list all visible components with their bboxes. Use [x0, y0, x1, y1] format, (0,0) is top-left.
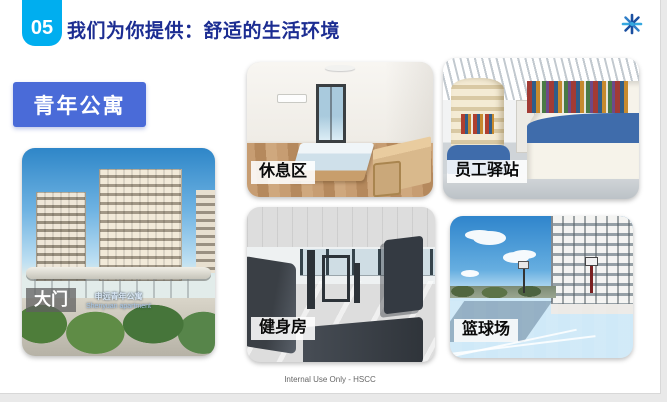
rest-window	[316, 84, 346, 143]
gym-rack-post	[354, 263, 360, 303]
court-treeline	[450, 286, 556, 299]
basketball-court-photo: 篮球场	[450, 216, 633, 358]
snowflake-logo-icon	[620, 12, 644, 36]
basketball-court-label: 篮球场	[454, 319, 518, 342]
rest-area-photo: 休息区	[247, 62, 433, 197]
bookshelf-row	[527, 102, 628, 113]
basketball-backboard	[518, 261, 529, 269]
section-tag-label: 青年公寓	[34, 90, 126, 120]
gate-tower-right	[196, 190, 215, 273]
gate-label: 大门	[26, 288, 76, 312]
gate-sign-cn: 申远青年公寓	[94, 292, 142, 301]
station-curved-bookshelf	[527, 81, 639, 180]
slide-title: 我们为你提供：舒适的生活环境	[67, 16, 340, 43]
basketball-backboard	[585, 257, 598, 266]
staff-station-photo: 员工驿站	[443, 58, 639, 199]
gate-canopy	[26, 267, 211, 279]
bookshelf-row	[527, 81, 628, 92]
rest-ac-unit	[277, 94, 307, 103]
gate-photo: 申远青年公寓 Shenyuan apartment 大门	[22, 148, 215, 356]
station-round-shelf	[451, 78, 504, 149]
gym-photo: 健身房	[247, 207, 435, 362]
gym-label: 健身房	[251, 317, 315, 340]
bookshelf-blue-base	[527, 113, 639, 143]
cloud	[512, 250, 536, 259]
staff-station-label: 员工驿站	[447, 160, 527, 183]
bookshelf-row	[527, 91, 628, 102]
station-round-shelf-books	[461, 114, 494, 134]
gym-machine	[384, 236, 423, 315]
slide-canvas: 05 我们为你提供：舒适的生活环境 青年公寓 申远青年公寓 Shenyuan a…	[0, 0, 661, 394]
slide-number-badge: 05	[22, 0, 62, 46]
gym-rack-frame	[322, 255, 350, 302]
rest-area-label: 休息区	[251, 161, 315, 184]
rest-chair	[373, 160, 401, 197]
cloud	[465, 230, 494, 240]
gate-tower-center	[99, 169, 182, 281]
section-tag: 青年公寓	[13, 82, 146, 127]
slide-number: 05	[31, 17, 53, 40]
footer-classification: Internal Use Only - HSCC	[0, 375, 660, 384]
gym-rack-post	[307, 250, 315, 309]
